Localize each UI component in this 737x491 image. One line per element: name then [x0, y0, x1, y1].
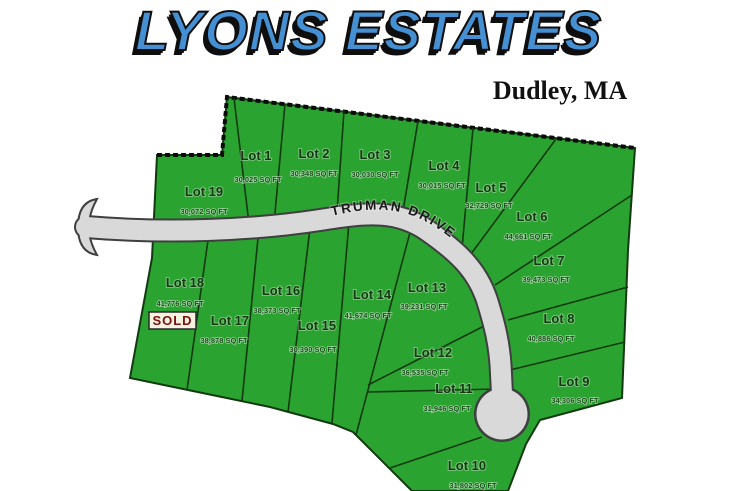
lot-2-label: Lot 2 — [298, 146, 329, 161]
lot-11-label: Lot 11 — [435, 381, 473, 396]
lot-10-area: 31,802 SQ FT — [449, 481, 497, 490]
lot-7-label: Lot 7 — [533, 253, 564, 268]
lot-12-area: 36,535 SQ FT — [401, 368, 449, 377]
lot-6-area: 44,661 SQ FT — [504, 232, 552, 241]
lot-19-area: 30,072 SQ FT — [180, 207, 228, 216]
lot-9-area: 34,306 SQ FT — [551, 396, 599, 405]
lot-1-area: 30,025 SQ FT — [234, 175, 282, 184]
lot-18-area: 41,776 SQ FT — [156, 299, 204, 308]
lot-13-label: Lot 13 — [408, 280, 446, 295]
lot-7-area: 39,473 SQ FT — [522, 275, 570, 284]
lot-4-area: 30,015 SQ FT — [418, 181, 466, 190]
lot-3-area: 30,030 SQ FT — [351, 170, 399, 179]
lot-6-label: Lot 6 — [516, 209, 547, 224]
lot-16-label: Lot 16 — [262, 283, 300, 298]
lot-9-label: Lot 9 — [558, 374, 589, 389]
lot-5-label: Lot 5 — [475, 180, 506, 195]
lot-5-area: 32,729 SQ FT — [465, 201, 513, 210]
lot-10-label: Lot 10 — [448, 458, 486, 473]
lot-14-area: 41,674 SQ FT — [344, 311, 392, 320]
sold-badge-label: SOLD — [152, 313, 192, 328]
lot-16-area: 38,373 SQ FT — [253, 306, 301, 315]
subdivision-map: TRUMAN DRIVE Lot 130,025 SQ FTLot 230,34… — [0, 0, 737, 491]
lot-11-area: 31,946 SQ FT — [423, 404, 471, 413]
lot-8-label: Lot 8 — [543, 311, 574, 326]
lot-17-label: Lot 17 — [211, 313, 249, 328]
lot-13-area: 39,231 SQ FT — [400, 302, 448, 311]
lot-17-area: 38,878 SQ FT — [200, 336, 248, 345]
lot-4-label: Lot 4 — [428, 158, 460, 173]
lot-14-label: Lot 14 — [353, 287, 392, 302]
lot-2-area: 30,348 SQ FT — [290, 169, 338, 178]
lot-3-label: Lot 3 — [359, 147, 390, 162]
lot-19-label: Lot 19 — [185, 184, 223, 199]
lot-1-label: Lot 1 — [240, 148, 271, 163]
lot-18-label: Lot 18 — [166, 275, 204, 290]
page-subtitle: Dudley, MA — [462, 76, 658, 106]
lot-15-label: Lot 15 — [298, 318, 336, 333]
page-title: LYONS ESTATES — [0, 0, 737, 63]
lot-8-area: 40,886 SQ FT — [527, 334, 575, 343]
lot-15-area: 30,390 SQ FT — [289, 345, 337, 354]
lot-12-label: Lot 12 — [414, 345, 452, 360]
